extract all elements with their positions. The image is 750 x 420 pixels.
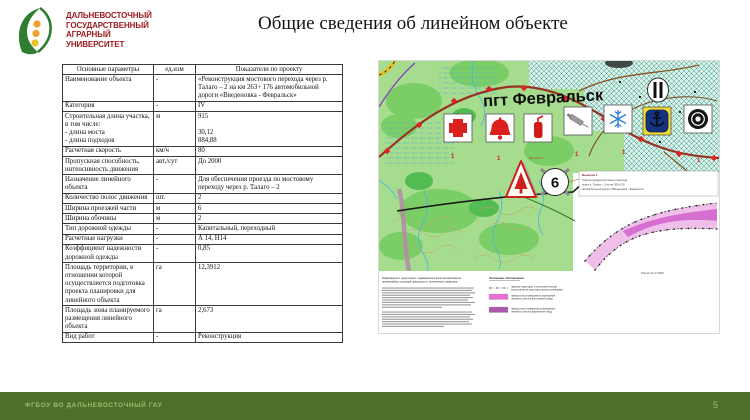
value-cell: 2,673 bbox=[196, 306, 343, 333]
unit-cell: км/ч bbox=[154, 146, 196, 156]
value-cell: Реконструкция bbox=[196, 332, 343, 342]
table-row: Площадь зоны планируемого размещения лин… bbox=[63, 306, 343, 333]
corridor-inset: Масштаб 1:5000 bbox=[585, 203, 717, 275]
param-cell: Вид работ bbox=[63, 332, 154, 342]
table-row: Количество полос движенияшт.2 bbox=[63, 193, 343, 203]
parameters-table: Основные параметрыед.измПоказатели по пр… bbox=[62, 64, 343, 343]
unit-cell: га bbox=[154, 263, 196, 306]
column-header: Показатели по проекту bbox=[196, 65, 343, 75]
param-cell: Расчетная скорость bbox=[63, 146, 154, 156]
unit-cell: - bbox=[154, 332, 196, 342]
map-graphic: пгт Февральск bbox=[379, 61, 719, 333]
svg-text:автомобильной дороги "Введенов: автомобильной дороги "Введеновка - Февра… bbox=[582, 187, 644, 191]
param-cell: Площадь зоны планируемого размещения лин… bbox=[63, 306, 154, 333]
value-cell: А 14, Н14 bbox=[196, 234, 343, 244]
location-map-image: пгт Февральск bbox=[378, 60, 720, 334]
unit-cell: м bbox=[154, 214, 196, 224]
svg-text:чрезвычайных ситуаций природно: чрезвычайных ситуаций природного и техно… bbox=[382, 280, 458, 284]
unit-cell: - bbox=[154, 175, 196, 193]
page-number: 5 bbox=[713, 400, 718, 410]
svg-text:граница зоны планируемого разм: граница зоны планируемого размещения bbox=[511, 296, 556, 298]
table-row: Вид работ-Реконструкция bbox=[63, 332, 343, 342]
logo-line: ДАЛЬНЕВОСТОЧНЫЙ bbox=[66, 11, 152, 21]
table-row: Категория-IV bbox=[63, 101, 343, 111]
param-cell: Пропускная способность, интенсивность дв… bbox=[63, 157, 154, 175]
value-cell: 80 bbox=[196, 146, 343, 156]
param-cell: Ширина проезжей части bbox=[63, 204, 154, 214]
table-row: Расчетная скоростькм/ч80 bbox=[63, 146, 343, 156]
legend-permanent-zone-swatch bbox=[489, 294, 508, 300]
unit-cell: га bbox=[154, 306, 196, 333]
logo-line: АГРАРНЫЙ bbox=[66, 30, 152, 40]
university-name: ДАЛЬНЕВОСТОЧНЫЙ ГОСУДАРСТВЕННЫЙ АГРАРНЫЙ… bbox=[66, 11, 152, 49]
table-row: Площадь территории, в отношении которой … bbox=[63, 263, 343, 306]
unit-cell: шт. bbox=[154, 193, 196, 203]
callout-ref-label: Выноска 1 bbox=[529, 156, 544, 160]
unit-cell: - bbox=[154, 244, 196, 262]
table-row: Ширина проезжей частим6 bbox=[63, 204, 343, 214]
unit-cell: м bbox=[154, 204, 196, 214]
value-cell: 2 bbox=[196, 214, 343, 224]
page-title: Общие сведения об линейном объекте bbox=[258, 13, 568, 35]
param-cell: Категория bbox=[63, 101, 154, 111]
university-logo-icon bbox=[10, 5, 64, 59]
logo-line: УНИВЕРСИТЕТ bbox=[66, 40, 152, 50]
value-cell: Для обеспечения проезда по мостовому пер… bbox=[196, 175, 343, 193]
table-row: Тип дорожной одежды-Капитальный, переход… bbox=[63, 224, 343, 234]
value-cell: Капитальный, переходный bbox=[196, 224, 343, 234]
footer-bar: ФГБОУ ВО ДАЛЬНЕВОСТОЧНЫЙ ГАУ 5 bbox=[0, 392, 750, 420]
unit-cell: - bbox=[154, 224, 196, 234]
notes-text-lines bbox=[382, 288, 475, 328]
table-row: Пропускная способность, интенсивность дв… bbox=[63, 157, 343, 175]
svg-text:границы территории, в отношени: границы территории, в отношении которой bbox=[511, 286, 558, 289]
param-cell: Тип дорожной одежды bbox=[63, 224, 154, 234]
value-cell: «Реконструкция мостового перехода через … bbox=[196, 75, 343, 102]
column-header: ед.изм bbox=[154, 65, 196, 75]
svg-text:через р. Талаго – 2 на км 263+: через р. Талаго – 2 на км 263+176 bbox=[582, 183, 625, 187]
table-row: Коэффициент надежности дорожной одежды-0… bbox=[63, 244, 343, 262]
footer-university-label: ФГБОУ ВО ДАЛЬНЕВОСТОЧНЫЙ ГАУ bbox=[25, 402, 162, 409]
table-row: Наименование объекта-«Реконструкция мост… bbox=[63, 75, 343, 102]
unit-cell: - bbox=[154, 234, 196, 244]
svg-text:осуществляется подготовка прое: осуществляется подготовка проекта планир… bbox=[511, 290, 563, 292]
table-row: Назначение линейного объекта-Для обеспеч… bbox=[63, 175, 343, 193]
unit-cell: м bbox=[154, 112, 196, 147]
unit-cell: - bbox=[154, 101, 196, 111]
value-cell: 915 30,12 884,88 bbox=[196, 112, 343, 147]
notes-block: Информация о территориях, подверженных р… bbox=[382, 276, 475, 327]
value-cell: 0,85 bbox=[196, 244, 343, 262]
anchor-icon bbox=[643, 107, 671, 135]
table-row: Ширина обочиным2 bbox=[63, 214, 343, 224]
map-legend: Условные обозначения границы территории,… bbox=[489, 276, 563, 314]
svg-text:линейного объекта (постоянный: линейного объекта (постоянный отвод) bbox=[511, 298, 553, 301]
fire-extinguisher-icon bbox=[524, 114, 552, 142]
value-cell: IV bbox=[196, 101, 343, 111]
value-cell: 2 bbox=[196, 193, 343, 203]
logo-line: ГОСУДАРСТВЕННЫЙ bbox=[66, 21, 152, 31]
factory-icon bbox=[648, 78, 669, 102]
column-header: Основные параметры bbox=[63, 65, 154, 75]
red-cross-icon bbox=[444, 114, 472, 142]
scale-label: Масштаб 1:5000 bbox=[641, 271, 664, 275]
presentation-slide: ДАЛЬНЕВОСТОЧНЫЙ ГОСУДАРСТВЕННЫЙ АГРАРНЫЙ… bbox=[0, 0, 750, 420]
svg-text:"Реконструкция мостового перех: "Реконструкция мостового перехода bbox=[582, 178, 628, 182]
param-cell: Коэффициент надежности дорожной одежды bbox=[63, 244, 154, 262]
police-badge-icon bbox=[684, 105, 712, 133]
svg-text:Информация о территориях, подв: Информация о территориях, подверженных р… bbox=[382, 276, 462, 280]
svg-text:6: 6 bbox=[551, 175, 559, 192]
svg-text:Условные обозначения: Условные обозначения bbox=[489, 276, 524, 280]
value-cell: 6 bbox=[196, 204, 343, 214]
value-cell: 12,3912 bbox=[196, 263, 343, 306]
param-cell: Строительная длина участка, в том числе:… bbox=[63, 112, 154, 147]
callout-box: Выноска 1 "Реконструкция мостового перех… bbox=[569, 171, 718, 196]
syringe-icon bbox=[564, 107, 592, 135]
svg-text:линейного объекта (временный о: линейного объекта (временный отвод) bbox=[511, 311, 552, 314]
unit-cell: авт./сут bbox=[154, 157, 196, 175]
table-body: Наименование объекта-«Реконструкция мост… bbox=[63, 75, 343, 343]
unit-cell: - bbox=[154, 75, 196, 102]
param-cell: Количество полос движения bbox=[63, 193, 154, 203]
param-cell: Расчетные нагрузки bbox=[63, 234, 154, 244]
param-cell: Назначение линейного объекта bbox=[63, 175, 154, 193]
svg-text:Выноска 1: Выноска 1 bbox=[582, 173, 598, 177]
snowflake-icon bbox=[604, 105, 632, 133]
param-cell: Площадь территории, в отношении которой … bbox=[63, 263, 154, 306]
svg-text:граница зоны планируемого разм: граница зоны планируемого размещения bbox=[511, 309, 556, 311]
table-row: Строительная длина участка, в том числе:… bbox=[63, 112, 343, 147]
bell-icon bbox=[486, 114, 514, 142]
table-header: Основные параметрыед.измПоказатели по пр… bbox=[63, 65, 343, 75]
param-cell: Наименование объекта bbox=[63, 75, 154, 102]
table-row: Расчетные нагрузки-А 14, Н14 bbox=[63, 234, 343, 244]
legend-temporary-zone-swatch bbox=[489, 307, 508, 313]
param-cell: Ширина обочины bbox=[63, 214, 154, 224]
value-cell: До 2000 bbox=[196, 157, 343, 175]
